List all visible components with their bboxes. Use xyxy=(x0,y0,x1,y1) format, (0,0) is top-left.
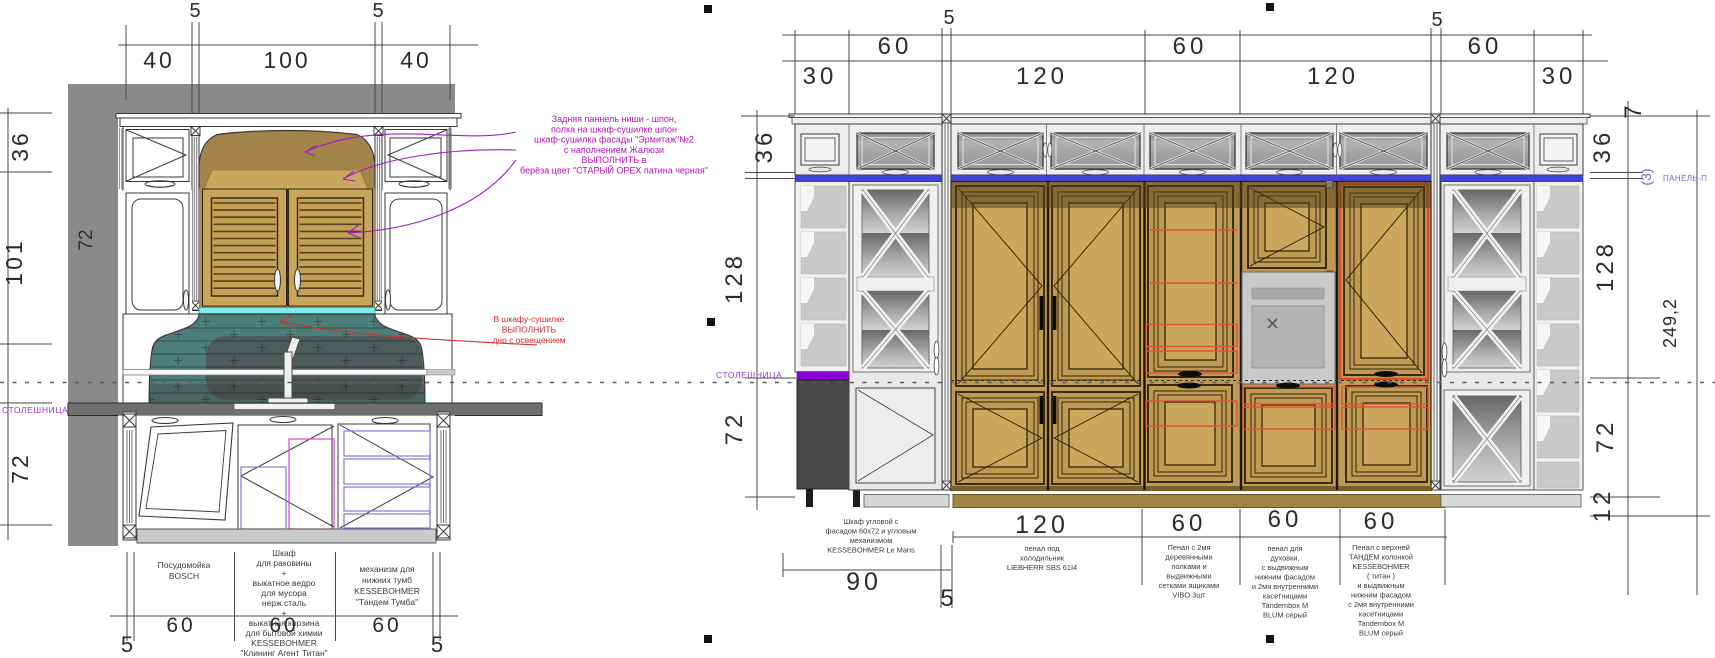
svg-text:128: 128 xyxy=(1592,240,1619,292)
svg-text:72: 72 xyxy=(721,411,748,446)
svg-text:40: 40 xyxy=(143,47,175,73)
svg-text:для бытовой химии: для бытовой химии xyxy=(246,628,323,638)
svg-text:+: + xyxy=(282,608,287,618)
svg-text:BOSCH: BOSCH xyxy=(169,571,199,581)
svg-text:сетками ящиками: сетками ящиками xyxy=(1159,581,1220,590)
svg-text:"Тандем Тумба": "Тандем Тумба" xyxy=(356,597,418,607)
svg-text:60: 60 xyxy=(1172,510,1207,537)
svg-text:касетницами: касетницами xyxy=(1263,592,1307,601)
svg-text:для мусора: для мусора xyxy=(261,588,307,598)
svg-text:5: 5 xyxy=(431,632,443,657)
svg-text:выкатная корзина: выкатная корзина xyxy=(249,618,320,628)
svg-text:и 2мя внутренними: и 2мя внутренними xyxy=(1252,582,1318,591)
svg-text:VIBO 3шт: VIBO 3шт xyxy=(1172,591,1206,600)
svg-text:ВЫПОЛНИТЬ в: ВЫПОЛНИТЬ в xyxy=(582,155,647,165)
svg-text:12: 12 xyxy=(1589,488,1616,523)
svg-text:В шкафу-сушилке: В шкафу-сушилке xyxy=(493,314,564,324)
svg-text:30: 30 xyxy=(1542,63,1577,90)
svg-text:36: 36 xyxy=(7,130,33,162)
svg-text:Пенал с 2мя: Пенал с 2мя xyxy=(1168,543,1211,552)
svg-text:с наполнением Жалюзи: с наполнением Жалюзи xyxy=(564,145,664,155)
svg-text:нижним фасадом: нижним фасадом xyxy=(1255,573,1315,582)
svg-text:ПАНЕЛЬ-П: ПАНЕЛЬ-П xyxy=(1663,174,1707,183)
svg-text:полками и: полками и xyxy=(1171,562,1206,571)
svg-text:128: 128 xyxy=(721,252,748,304)
svg-text:механизмом: механизмом xyxy=(850,536,893,545)
svg-text:Tandembox M: Tandembox M xyxy=(1358,619,1404,628)
svg-text:духовки,: духовки, xyxy=(1270,554,1299,563)
svg-text:KESSEBOHMER: KESSEBOHMER xyxy=(1352,562,1409,571)
svg-text:120: 120 xyxy=(1015,511,1069,539)
svg-text:KESSEBOHMER: KESSEBOHMER xyxy=(251,638,317,648)
svg-text:выдвижными: выдвижными xyxy=(1166,572,1211,581)
svg-text:с выдвижным: с выдвижным xyxy=(1262,563,1309,572)
svg-text:фасадом 60х72 и угловым: фасадом 60х72 и угловым xyxy=(826,527,917,536)
svg-text:60: 60 xyxy=(1364,508,1399,535)
svg-text:5: 5 xyxy=(1431,9,1442,31)
svg-text:60: 60 xyxy=(1468,33,1503,60)
svg-text:ВЫПОЛНИТЬ: ВЫПОЛНИТЬ xyxy=(502,325,557,335)
svg-text:60: 60 xyxy=(1173,33,1208,60)
svg-text:36: 36 xyxy=(1589,129,1616,164)
svg-text:СТОЛЕШНИЦА: СТОЛЕШНИЦА xyxy=(716,370,782,380)
svg-text:(3): (3) xyxy=(1638,168,1654,185)
svg-text:LIEBHERR SBS 61I4: LIEBHERR SBS 61I4 xyxy=(1007,563,1077,572)
svg-text:Задняя паннель ниши - шпон,: Задняя паннель ниши - шпон, xyxy=(552,114,677,124)
svg-text:5: 5 xyxy=(372,0,383,22)
svg-text:механизм для: механизм для xyxy=(359,564,415,574)
svg-text:для раковины: для раковины xyxy=(257,558,312,568)
svg-text:касетницами: касетницами xyxy=(1359,610,1403,619)
svg-text:249,2: 249,2 xyxy=(1660,298,1680,348)
svg-text:Шкаф: Шкаф xyxy=(272,548,295,558)
svg-text:+: + xyxy=(282,568,287,578)
svg-text:Tandembox M: Tandembox M xyxy=(1262,601,1308,610)
svg-text:с 2мя внутренними: с 2мя внутренними xyxy=(1348,600,1414,609)
svg-text:BLUM серый: BLUM серый xyxy=(1359,629,1403,638)
svg-text:40: 40 xyxy=(400,47,432,73)
svg-text:90: 90 xyxy=(846,568,882,596)
svg-text:СТОЛЕШНИЦА: СТОЛЕШНИЦА xyxy=(2,405,68,415)
svg-text:KESSEBOHMER: KESSEBOHMER xyxy=(354,586,420,596)
svg-text:выкатное ведро: выкатное ведро xyxy=(253,578,316,588)
svg-text:72: 72 xyxy=(1592,419,1619,454)
svg-text:и выдвижным: и выдвижным xyxy=(1357,581,1404,590)
svg-text:60: 60 xyxy=(878,33,913,60)
svg-text:нижним фасадом: нижним фасадом xyxy=(1351,591,1411,600)
svg-text:полка на шкаф-сушилке шпон: полка на шкаф-сушилке шпон xyxy=(551,124,677,134)
svg-text:5: 5 xyxy=(940,585,953,612)
svg-text:72: 72 xyxy=(76,229,97,250)
svg-text:нерж.сталь: нерж.сталь xyxy=(262,598,307,608)
svg-text:деревянными: деревянными xyxy=(1165,553,1212,562)
svg-text:пенал под: пенал под xyxy=(1025,544,1061,553)
svg-text:Посудомойка: Посудомойка xyxy=(158,560,211,570)
svg-text:нижних тумб: нижних тумб xyxy=(362,575,412,585)
svg-text:60: 60 xyxy=(166,614,195,637)
svg-text:Шкаф угловой с: Шкаф угловой с xyxy=(844,517,899,526)
svg-text:60: 60 xyxy=(372,614,401,637)
svg-text:7: 7 xyxy=(1620,101,1647,118)
svg-text:холодильник: холодильник xyxy=(1020,554,1065,563)
svg-text:120: 120 xyxy=(1016,63,1068,90)
svg-text:шкаф-сушилка фасады "Эрмитаж"№: шкаф-сушилка фасады "Эрмитаж"№2 xyxy=(534,135,694,145)
svg-text:36: 36 xyxy=(751,129,778,164)
svg-text:101: 101 xyxy=(1,238,27,285)
svg-text:60: 60 xyxy=(1268,506,1303,533)
svg-text:5: 5 xyxy=(121,632,133,657)
svg-text:30: 30 xyxy=(803,63,838,90)
svg-text:( титан ): ( титан ) xyxy=(1367,572,1395,581)
svg-text:5: 5 xyxy=(943,7,954,29)
svg-text:Пенал с верхней: Пенал с верхней xyxy=(1352,543,1410,552)
svg-text:берёза цвет "СТАРЫЙ ОРЕХ патин: берёза цвет "СТАРЫЙ ОРЕХ патина черная" xyxy=(520,165,708,176)
svg-text:72: 72 xyxy=(7,452,33,484)
svg-text:5: 5 xyxy=(189,0,200,22)
svg-text:"Клининг Агент Титан": "Клининг Агент Титан" xyxy=(240,648,327,658)
svg-text:KESSEBOHMER Le Mans: KESSEBOHMER Le Mans xyxy=(827,546,915,555)
svg-text:пенал для: пенал для xyxy=(1267,544,1302,553)
svg-text:120: 120 xyxy=(1307,63,1359,90)
svg-text:ТАНДЕМ колонкой: ТАНДЕМ колонкой xyxy=(1349,553,1413,562)
svg-text:100: 100 xyxy=(263,47,310,73)
svg-text:BLUM серый: BLUM серый xyxy=(1263,611,1307,620)
